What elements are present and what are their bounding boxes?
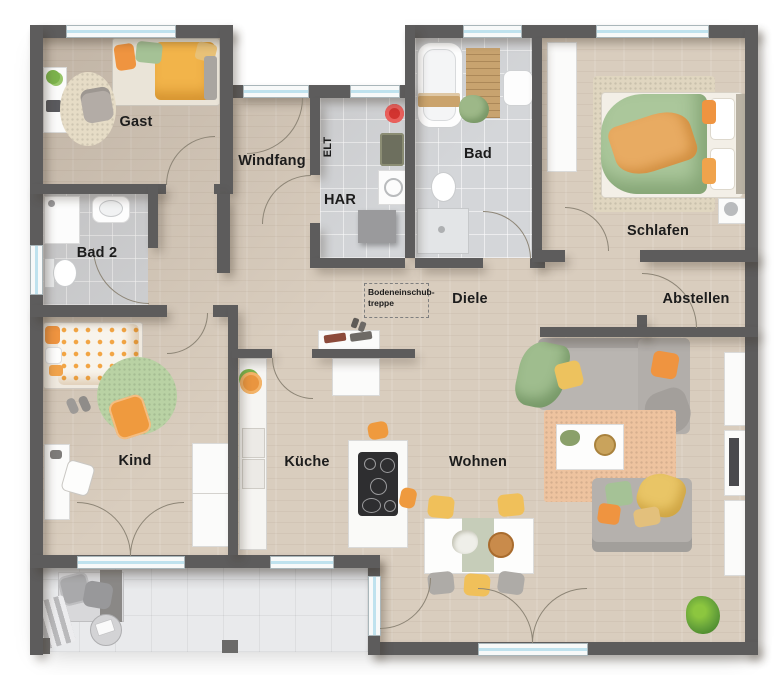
bad2-toilet-bowl: [53, 259, 77, 287]
wall-gast-south-a: [30, 184, 166, 194]
wohnen-tv: [729, 438, 739, 486]
wall-bad-east: [532, 38, 542, 250]
kueche-burner-1: [364, 458, 376, 470]
wall-kind-east: [228, 305, 238, 555]
attic-hatch-label-line1: Bodeneinschub-: [368, 287, 435, 297]
room-label-diele: Diele: [452, 291, 488, 307]
wall-right: [745, 25, 758, 655]
kueche-window: [270, 556, 334, 569]
bad-window: [463, 25, 522, 38]
kind-wardrobe: [192, 443, 230, 547]
kueche-oven-2: [242, 459, 265, 489]
wall-har-south: [310, 258, 405, 268]
schlafen-window: [596, 25, 709, 38]
bad-towel-green: [459, 95, 489, 123]
gast-armchair: [79, 86, 114, 125]
wall-bad-south-a: [415, 258, 483, 268]
schlafen-pillow-orange-2: [702, 158, 716, 184]
wall-gast-east: [220, 25, 233, 194]
room-label-bad: Bad: [464, 146, 492, 162]
kueche-oven-1: [242, 428, 265, 458]
har-doormat: [380, 133, 404, 166]
gast-laptop: [46, 100, 61, 112]
room-label-schlafen: Schlafen: [627, 223, 689, 239]
wall-corridor-stub: [217, 194, 230, 273]
room-label-abstellen: Abstellen: [662, 291, 729, 307]
kueche-burner-4: [362, 498, 381, 513]
kind-desk-lamp: [50, 450, 62, 459]
wohnen-pillow-orange: [650, 350, 680, 380]
bad2-sink-bowl: [99, 200, 123, 217]
facade-notch: [233, 0, 405, 85]
schlafen-lamp: [724, 202, 738, 216]
har-washer-door: [384, 178, 403, 197]
wall-bad2-south-a: [30, 305, 167, 317]
wall-bad2-south-b: [213, 305, 228, 317]
wohnen-chair-gray-2: [497, 570, 526, 595]
wall-schlafen-south-b: [640, 250, 758, 262]
room-label-windfang: Windfang: [238, 153, 306, 169]
wohnen-sideboard: [724, 500, 746, 576]
schlafen-pillow-orange-1: [702, 100, 716, 124]
gast-pillow-green: [135, 41, 163, 65]
wohnen-chair-yellow-2: [497, 493, 525, 518]
room-label-kueche: Küche: [284, 454, 329, 470]
wohnen-chair-gray-1: [427, 571, 455, 596]
wall-kueche-north-a: [232, 349, 272, 358]
kueche-burner-2: [380, 458, 395, 473]
gast-window: [66, 25, 176, 38]
bad-tub-caddy: [418, 93, 460, 107]
kind-pillow-2: [45, 347, 62, 364]
wall-schlafen-south-a: [532, 250, 565, 262]
room-label-gast: Gast: [119, 114, 152, 130]
room-label-har: HAR: [324, 192, 356, 208]
wall-gast-south-b: [214, 184, 220, 194]
wohnen-table-tray: [594, 434, 616, 456]
attic-hatch-box: Bodeneinschub- treppe: [364, 283, 429, 318]
terrace-pillow-2: [82, 580, 114, 610]
wall-kueche-north-b: [312, 349, 415, 358]
schlafen-headboard: [736, 94, 745, 194]
bad-toilet-bowl: [431, 172, 456, 202]
wohnen-chair-yellow-1: [427, 495, 455, 520]
kueche-burner-3: [370, 478, 387, 495]
bad-sink: [503, 70, 533, 106]
wall-har-bad: [405, 25, 415, 258]
wall-windfang-har-a: [310, 98, 320, 175]
har-red-device: [385, 104, 404, 123]
bad-shower-drain: [438, 226, 445, 233]
schlafen-wardrobe: [547, 42, 577, 172]
room-label-bad2: Bad 2: [77, 245, 118, 261]
bad-bathtub-inner: [423, 49, 456, 121]
har-window: [350, 85, 400, 98]
room-label-wohnen: Wohnen: [449, 454, 507, 470]
gast-blanket-gray: [204, 56, 217, 100]
bad2-shower-head: [48, 200, 55, 207]
kind-pillow-3: [49, 365, 63, 376]
floor-plan-canvas: Bodeneinschub- treppe Gast Windfang ELT …: [0, 0, 775, 675]
kind-pillow-1: [45, 326, 60, 344]
gast-pillow-orange: [113, 43, 136, 72]
har-gray-box: [358, 210, 396, 243]
wall-wohnen-north: [540, 327, 758, 337]
attic-hatch-label-line2: treppe: [368, 298, 394, 308]
wohnen-loveseat-pillow-orange: [597, 503, 622, 526]
kind-terrace-door: [77, 556, 185, 569]
wohnen-table-plant: [560, 430, 580, 446]
kueche-fridge-cabinet: [332, 358, 380, 396]
entrance-door: [243, 85, 309, 98]
room-label-kind: Kind: [118, 453, 151, 469]
wohnen-terrace-door: [478, 643, 588, 656]
terrace-post-2: [222, 640, 238, 653]
kind-wardrobe-split: [192, 493, 228, 494]
wohnen-table-bowl: [488, 532, 514, 558]
bad2-window: [30, 245, 43, 295]
gast-plant: [46, 70, 60, 84]
wall-bad2-east: [148, 184, 158, 248]
room-label-elt: ELT: [322, 137, 334, 158]
kueche-burner-5: [384, 500, 396, 512]
wohnen-media-shelf-1: [724, 352, 746, 426]
wohnen-table-flowers: [452, 530, 478, 554]
wall-windfang-har-b: [310, 223, 320, 258]
kueche-fruit-bowl: [240, 372, 262, 394]
wohnen-plant: [686, 596, 720, 634]
